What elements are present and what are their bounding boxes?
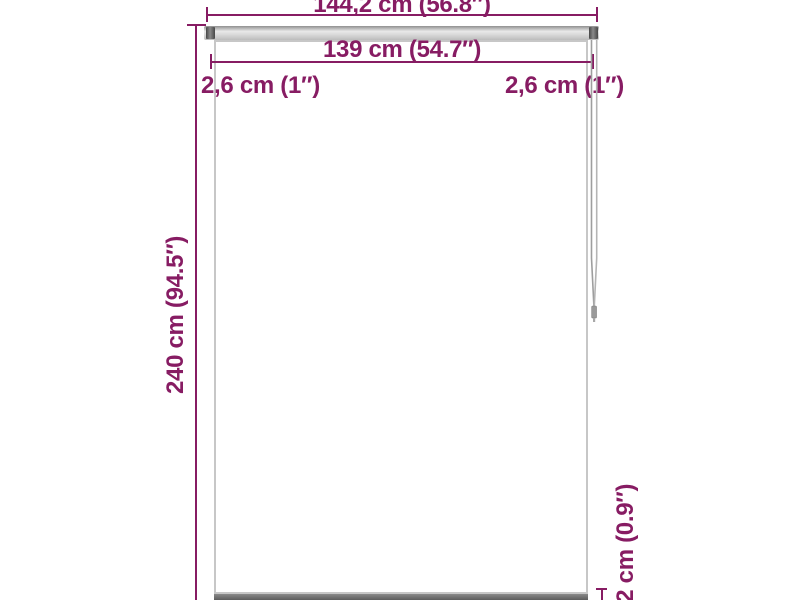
total-width-tick-left <box>206 7 208 22</box>
blind-bottom-bar <box>214 594 588 600</box>
total-width-tick-right <box>596 7 598 22</box>
fabric-width-dimension-line <box>211 61 593 63</box>
total-width-dimension-line <box>207 14 597 16</box>
cord-line-right <box>594 40 596 306</box>
fabric-width-tick-left <box>210 54 212 69</box>
fabric-width-label: 139 cm (54.7″) <box>323 37 481 63</box>
mounting-bracket-right <box>589 27 598 39</box>
height-dimension-line <box>195 24 197 600</box>
height-label: 240 cm (94.5″) <box>163 236 189 394</box>
right-gap-label: 2,6 cm (1″) <box>505 73 624 99</box>
cord-line-left <box>592 40 594 306</box>
bottom-depth-dimension-line <box>601 588 603 600</box>
cord-weight-tip <box>593 318 595 322</box>
cord-weight <box>592 306 597 318</box>
left-gap-label: 2,6 cm (1″) <box>201 73 320 99</box>
dimension-diagram: 144,2 cm (56.8″) 139 cm (54.7″) 2,6 cm (… <box>0 0 800 600</box>
blind-fabric-panel <box>214 40 588 594</box>
bottom-depth-label: 2,2 cm (0.9″) <box>613 484 639 600</box>
mounting-bracket-left <box>206 27 215 39</box>
pull-cord <box>588 40 600 330</box>
